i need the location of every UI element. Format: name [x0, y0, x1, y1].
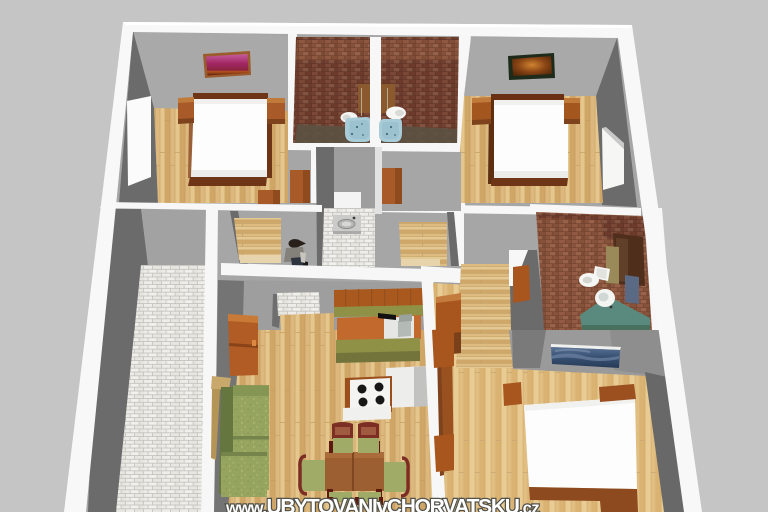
svg-text:www.UBYTOVANIvCHORVATSKU.cz: www.UBYTOVANIvCHORVATSKU.cz — [225, 496, 539, 512]
